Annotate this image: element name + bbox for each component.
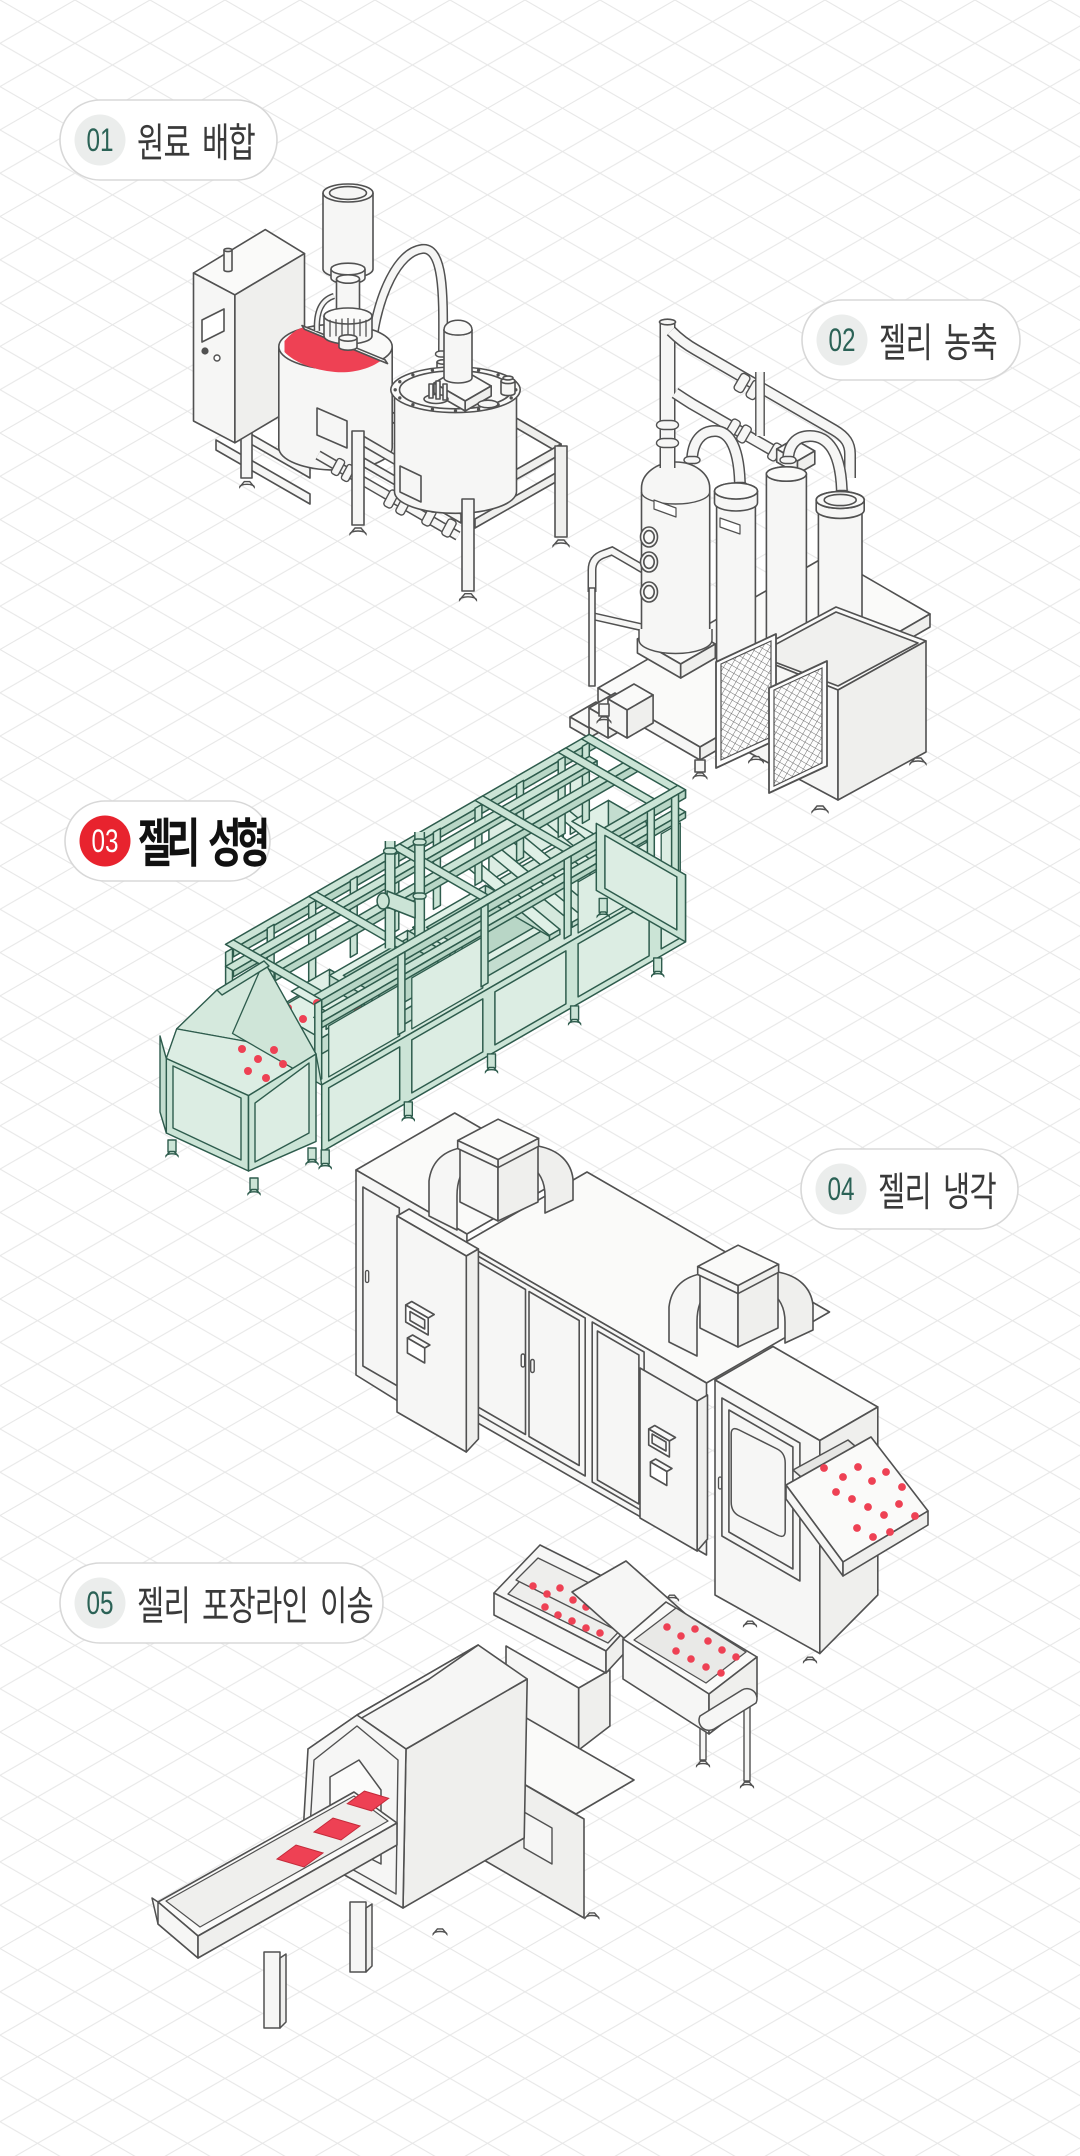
svg-text:04: 04 [828, 1171, 855, 1207]
svg-text:05: 05 [87, 1585, 114, 1621]
svg-text:01: 01 [87, 122, 114, 158]
svg-text:03: 03 [92, 823, 119, 859]
svg-text:02: 02 [829, 322, 856, 358]
